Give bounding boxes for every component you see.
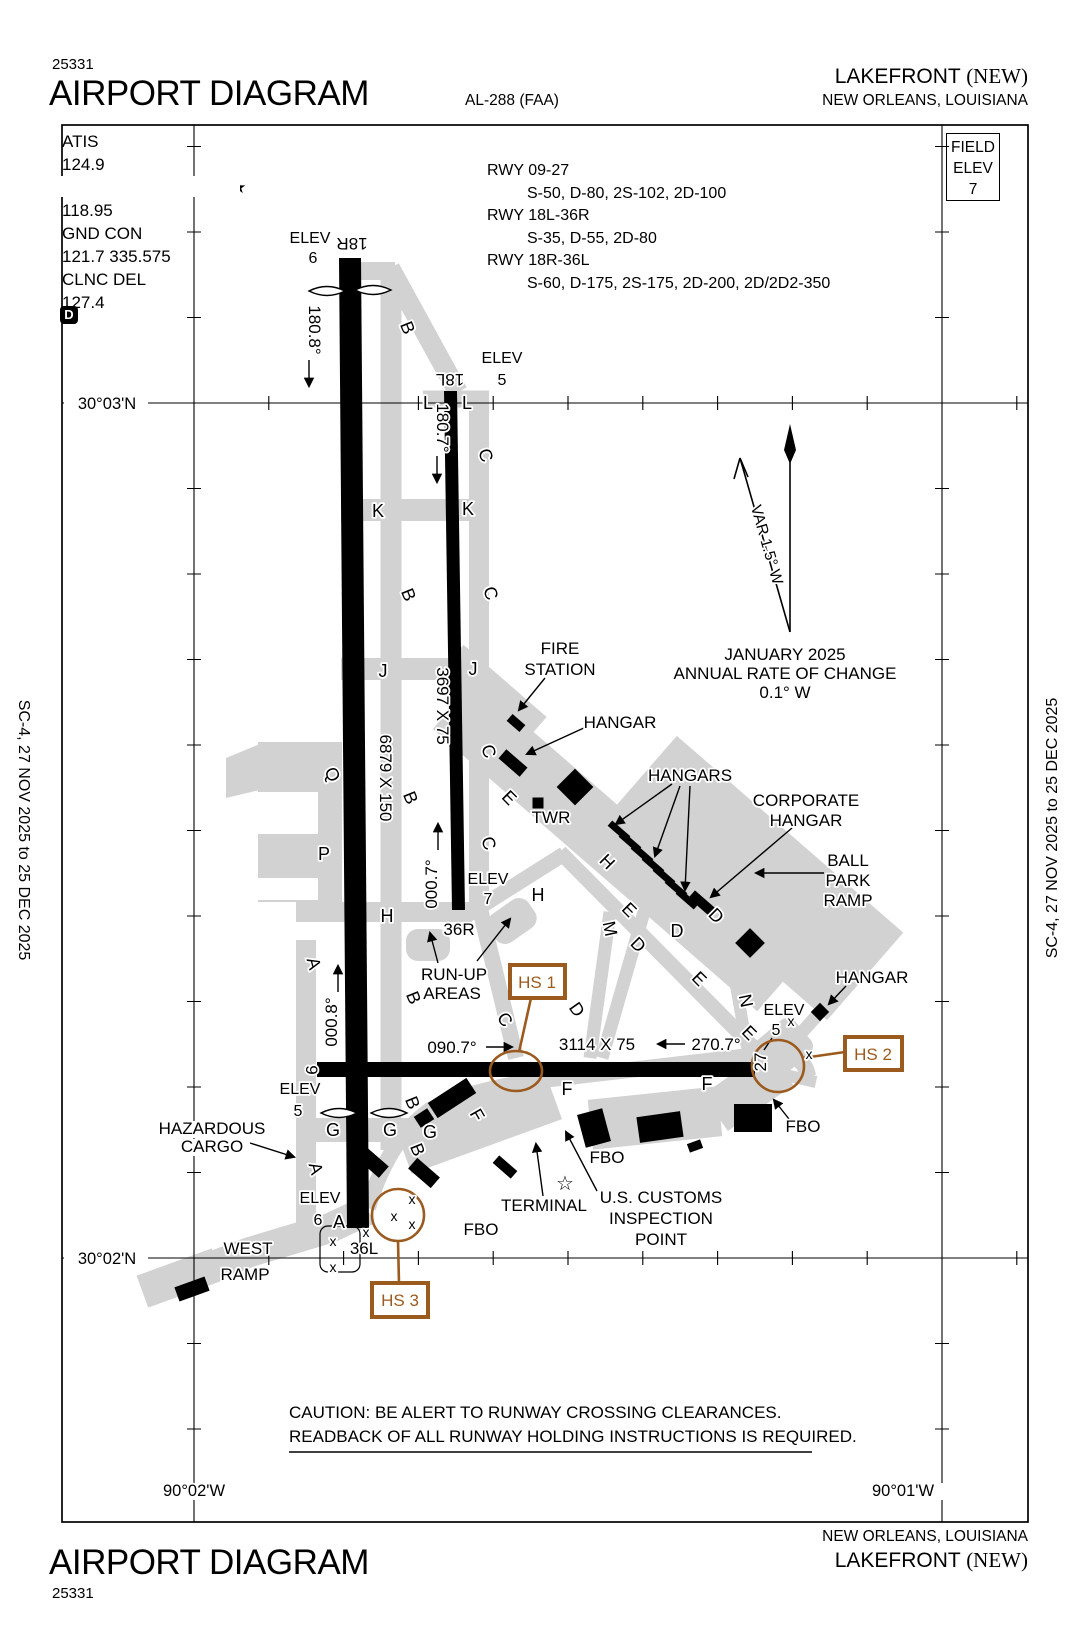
map-label-ramp-ballpark: RAMP — [823, 891, 872, 910]
map-label-36r: 36R — [443, 920, 474, 939]
caution-line-1: CAUTION: BE ALERT TO RUNWAY CROSSING CLE… — [289, 1403, 782, 1422]
map-label-terminal: TERMINAL — [501, 1196, 587, 1215]
map-label-hs1-label: HS 1 — [518, 973, 556, 992]
map-label-18l: 18L — [436, 370, 464, 389]
map-label-5: 5 — [772, 1022, 781, 1039]
map-label-6: 6 — [309, 250, 318, 267]
map-label-west: WEST — [223, 1239, 272, 1258]
map-label-g: G — [423, 1122, 437, 1142]
map-label-k: K — [372, 501, 384, 521]
map-label-hangar-nw: HANGAR — [584, 713, 657, 732]
map-label-hangars: HANGARS — [648, 766, 732, 785]
airport-diagram-map: CAUTION: BE ALERT TO RUNWAY CROSSING CLE… — [0, 0, 1076, 1650]
map-label-x-mark: x — [391, 1208, 398, 1224]
map-label-g: G — [383, 1120, 397, 1140]
taxiways-aprons — [137, 262, 904, 1308]
map-label-h: H — [381, 906, 394, 926]
map-label-rwy27: 27 — [751, 1053, 770, 1072]
map-label-f: F — [562, 1079, 573, 1099]
runway-09-27 — [317, 1062, 755, 1077]
map-label-30-03-n: 30°03'N — [78, 395, 136, 413]
map-label-elev: ELEV — [300, 1190, 341, 1207]
apron-building — [687, 1139, 703, 1152]
map-label-u-s-customs: U.S. CUSTOMS — [600, 1188, 722, 1207]
map-label-hs2-label: HS 2 — [854, 1045, 892, 1064]
map-label-0-1-w: 0.1° W — [759, 683, 810, 702]
map-label-corporate: CORPORATE — [753, 791, 859, 810]
map-label-station: STATION — [524, 660, 595, 679]
map-label-5: 5 — [498, 372, 507, 389]
map-label-elev: ELEV — [290, 230, 331, 247]
tower-building — [533, 798, 544, 809]
map-label-x-mark: x — [788, 1013, 795, 1029]
map-label-ramp-west: RAMP — [220, 1265, 269, 1284]
map-label-5: 5 — [294, 1103, 303, 1120]
map-label-36l: 36L — [350, 1239, 378, 1258]
map-label-elev: ELEV — [764, 1002, 805, 1019]
map-label-fbo-3: FBO — [464, 1220, 499, 1239]
map-label-6879-x-150: 6879 X 150 — [376, 735, 395, 822]
map-label-park: PARK — [825, 871, 871, 890]
map-label-a: A — [333, 1212, 345, 1232]
map-label-j: J — [379, 661, 388, 681]
map-label-run-up: RUN-UP — [421, 965, 487, 984]
map-label-90-01-w: 90°01'W — [872, 1482, 934, 1500]
true-north-arrowhead — [784, 424, 796, 464]
map-label-180-8: 180.8° — [305, 305, 324, 354]
map-label-areas: AREAS — [423, 984, 481, 1003]
displaced-threshold-icon — [371, 1109, 407, 1118]
map-label-l: L — [423, 393, 433, 413]
map-label-90-02-w: 90°02'W — [163, 1482, 225, 1500]
map-label-annual-rate-of-change: ANNUAL RATE OF CHANGE — [674, 664, 897, 683]
map-label-january-2025: JANUARY 2025 — [724, 645, 845, 664]
map-label-rwy9: 9 — [302, 1065, 321, 1074]
map-label-k: K — [462, 499, 474, 519]
map-label-3697-x-75: 3697 X 75 — [433, 667, 452, 745]
apron-building — [493, 1155, 518, 1178]
map-label-cargo: CARGO — [181, 1137, 243, 1156]
map-label-var-1-5-w: VAR 1.5° W — [747, 503, 786, 587]
map-label-p: P — [318, 844, 330, 864]
map-label-270-7: 270.7° — [691, 1035, 740, 1054]
map-label-30-02-n: 30°02'N — [78, 1250, 136, 1268]
fbo-building — [734, 1104, 772, 1132]
map-label-hangar-corporate: HANGAR — [770, 811, 843, 830]
map-label-ball: BALL — [827, 851, 869, 870]
hs3-circle — [372, 1189, 424, 1241]
map-label-customs-star: ☆ — [556, 1173, 574, 1195]
caution-line-2: READBACK OF ALL RUNWAY HOLDING INSTRUCTI… — [289, 1427, 857, 1446]
map-label-x-mark: x — [409, 1191, 416, 1207]
map-label-7: 7 — [484, 891, 493, 908]
map-label-x-mark: x — [330, 1259, 337, 1275]
map-label-000-8: 000.8° — [322, 997, 341, 1046]
map-label-b: B — [402, 988, 425, 1007]
map-label-elev: ELEV — [280, 1081, 321, 1098]
map-label-point: POINT — [635, 1230, 687, 1249]
map-label-elev: ELEV — [482, 350, 523, 367]
map-label-x-mark: x — [363, 1224, 370, 1240]
map-label-x-mark: x — [409, 1216, 416, 1232]
map-label-d: D — [671, 921, 684, 941]
map-label-x-mark: x — [806, 1046, 813, 1062]
map-label-h: H — [532, 885, 545, 905]
map-label-g: G — [326, 1120, 340, 1140]
map-label-twr: TWR — [532, 808, 571, 827]
map-label-x-mark: x — [330, 1233, 337, 1249]
map-label-6: 6 — [314, 1212, 323, 1229]
map-label-fbo-1: FBO — [590, 1148, 625, 1167]
map-label-fire: FIRE — [541, 639, 580, 658]
map-label-m: M — [599, 919, 622, 938]
map-label-000-7: 000.7° — [422, 859, 441, 908]
map-label-hangar-east: HANGAR — [836, 968, 909, 987]
map-label-3114-x-75: 3114 X 75 — [559, 1035, 635, 1054]
map-label-fbo-2: FBO — [786, 1117, 821, 1136]
map-label-inspection: INSPECTION — [609, 1209, 713, 1228]
map-label-18r: 18R — [336, 234, 367, 253]
caution-note: CAUTION: BE ALERT TO RUNWAY CROSSING CLE… — [289, 1403, 857, 1452]
map-label-hazardous: HAZARDOUS — [159, 1119, 266, 1138]
map-label-090-7: 090.7° — [427, 1038, 476, 1057]
map-label-l: L — [462, 393, 472, 413]
map-label-elev: ELEV — [468, 871, 509, 888]
map-label-hs3-label: HS 3 — [381, 1291, 419, 1310]
map-label-b: B — [399, 788, 422, 807]
map-label-d: D — [565, 998, 589, 1020]
map-label-j: J — [469, 659, 478, 679]
map-label-180-7: 180.7° — [433, 403, 452, 452]
map-label-f: F — [702, 1074, 713, 1094]
